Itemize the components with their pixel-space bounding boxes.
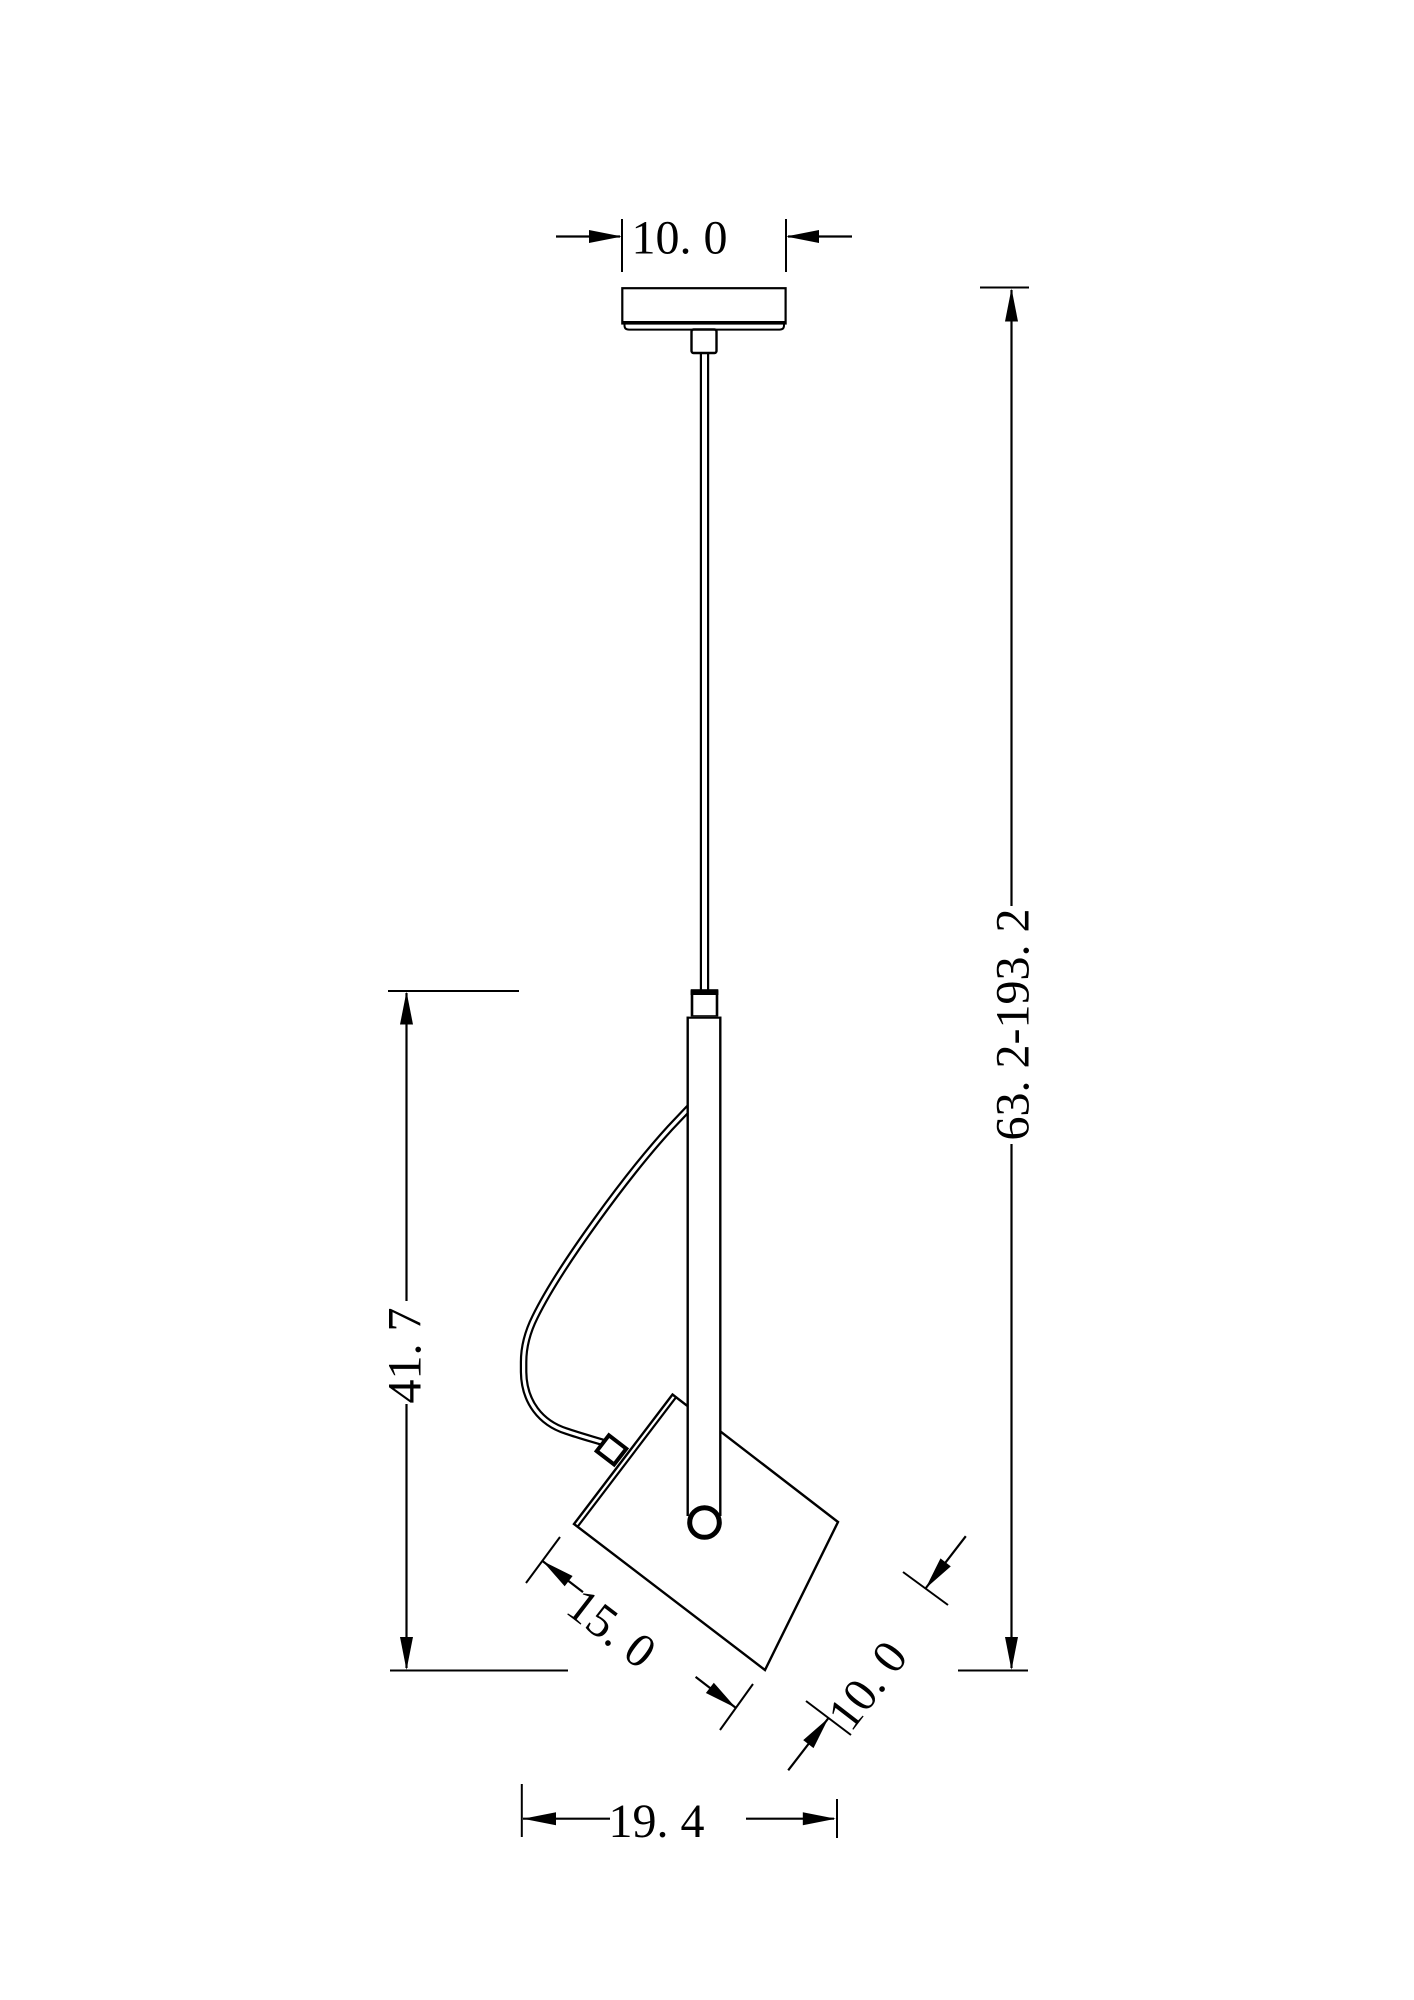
svg-text:41. 7: 41. 7 [379, 1308, 432, 1404]
svg-text:63. 2-193. 2: 63. 2-193. 2 [987, 909, 1040, 1141]
svg-text:19. 4: 19. 4 [609, 1795, 705, 1848]
svg-text:10. 0: 10. 0 [632, 212, 728, 265]
